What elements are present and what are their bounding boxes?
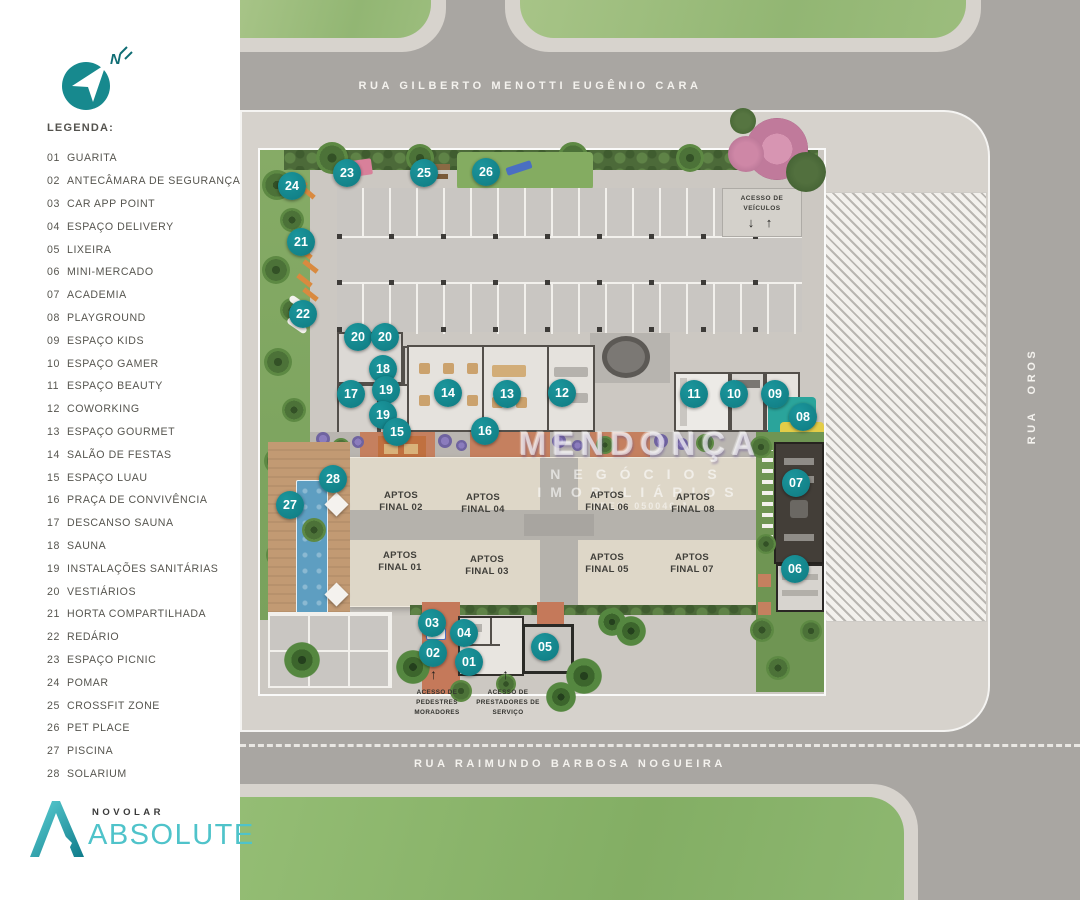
car-app-point-car xyxy=(426,628,446,640)
north-compass-icon: N xyxy=(48,42,138,122)
legend-item-07: 07ACADEMIA xyxy=(47,284,237,307)
apartment-building xyxy=(347,457,766,607)
street-name-right: RUA OROS xyxy=(1026,316,1038,476)
logo-a-mark xyxy=(28,795,86,861)
stepping-stone xyxy=(758,574,771,587)
room-academia xyxy=(774,442,824,564)
lixeira-building xyxy=(522,624,574,674)
legend-item-04: 04ESPAÇO DELIVERY xyxy=(47,215,237,238)
legend-item-17: 17DESCANSO SAUNA xyxy=(47,512,237,535)
legend-item-11: 11ESPAÇO BEAUTY xyxy=(47,375,237,398)
legend-item-15: 15ESPAÇO LUAU xyxy=(47,466,237,489)
legend-title: LEGENDA: xyxy=(47,122,114,134)
legend-item-01: 01GUARITA xyxy=(47,147,237,170)
legend-list: 01GUARITA02ANTECÂMARA DE SEGURANÇA03CAR … xyxy=(47,147,237,785)
room-mini-mercado xyxy=(776,564,824,612)
pet-bench xyxy=(476,174,492,179)
flowering-tree xyxy=(728,108,838,203)
legend-item-24: 24POMAR xyxy=(47,671,237,694)
legend-item-03: 03CAR APP POINT xyxy=(47,193,237,216)
sidewalk-corner-bottom xyxy=(240,784,918,900)
room-vestiarios xyxy=(337,332,403,384)
service-access-arrow: ↑ xyxy=(502,666,509,682)
legend-item-08: 08PLAYGROUND xyxy=(47,307,237,330)
legend-item-06: 06MINI-MERCADO xyxy=(47,261,237,284)
grass-top-left xyxy=(240,0,431,38)
room-espaco-gamer xyxy=(730,372,765,432)
stepping-stone xyxy=(758,602,771,615)
legend-item-21: 21HORTA COMPARTILHADA xyxy=(47,603,237,626)
logo-name: ABSOLUTE xyxy=(88,819,255,852)
crossfit-bench xyxy=(426,174,448,179)
developer-logo: NOVOLAR ABSOLUTE xyxy=(28,795,228,885)
service-access-label: ACESSO DE PRESTADORES DE SERVIÇO xyxy=(468,688,548,717)
street-name-bottom: RUA RAIMUNDO BARBOSA NOGUEIRA xyxy=(320,758,820,770)
vehicle-access-arrows: ↓ ↑ xyxy=(723,215,801,230)
legend-sidebar: N LEGENDA: 01GUARITA02ANTECÂMARA DE SEGU… xyxy=(0,0,240,900)
building-core xyxy=(524,514,594,536)
pedestrian-access-label: ACESSO DE PEDESTRES MORADORES xyxy=(400,688,474,717)
legend-item-13: 13ESPAÇO GOURMET xyxy=(47,421,237,444)
road-center-dashed-line xyxy=(240,744,1080,747)
pedestrian-access-path xyxy=(422,602,460,694)
legend-item-27: 27PISCINA xyxy=(47,740,237,763)
legend-item-18: 18SAUNA xyxy=(47,535,237,558)
legend-item-14: 14SALÃO DE FESTAS xyxy=(47,443,237,466)
pool-planter xyxy=(302,518,326,542)
picnic-blanket xyxy=(345,158,373,177)
legend-item-12: 12COWORKING xyxy=(47,398,237,421)
sidewalk-corner-top-right xyxy=(505,0,981,52)
building-base-hedge xyxy=(410,605,762,615)
legend-item-19: 19INSTALAÇÕES SANITÁRIAS xyxy=(47,557,237,580)
legend-item-02: 02ANTECÂMARA DE SEGURANÇA xyxy=(47,170,237,193)
site-plan-map: RUA GILBERTO MENOTTI EUGÊNIO CARA RUA RA… xyxy=(240,0,1080,900)
grass-top-right xyxy=(520,0,966,38)
sidewalk-corner-top-left xyxy=(240,0,446,52)
legend-item-28: 28SOLARIUM xyxy=(47,763,237,786)
legend-item-05: 05LIXEIRA xyxy=(47,238,237,261)
legend-item-25: 25CROSSFIT ZONE xyxy=(47,694,237,717)
neighbor-lot-hatched xyxy=(823,192,987,622)
pet-place-area xyxy=(457,152,593,190)
pedestrian-access-arrow: ↑ xyxy=(430,666,437,682)
legend-item-23: 23ESPAÇO PICNIC xyxy=(47,649,237,672)
legend-item-20: 20VESTIÁRIOS xyxy=(47,580,237,603)
room-espaco-beauty xyxy=(674,372,730,432)
round-water-tank xyxy=(602,336,650,378)
grass-bottom xyxy=(240,797,904,900)
guarita-complex xyxy=(458,616,524,676)
legend-item-26: 26PET PLACE xyxy=(47,717,237,740)
logo-brand: NOVOLAR xyxy=(92,807,255,818)
legend-item-16: 16PRAÇA DE CONVIVÊNCIA xyxy=(47,489,237,512)
room-salao-gourmet-coworking xyxy=(407,345,595,432)
legend-item-09: 09ESPAÇO KIDS xyxy=(47,329,237,352)
site-plan-poster: RUA GILBERTO MENOTTI EUGÊNIO CARA RUA RA… xyxy=(0,0,1080,900)
street-name-top: RUA GILBERTO MENOTTI EUGÊNIO CARA xyxy=(270,80,790,92)
legend-item-10: 10ESPAÇO GAMER xyxy=(47,352,237,375)
crossfit-equipment xyxy=(420,164,450,170)
legend-item-22: 22REDÁRIO xyxy=(47,626,237,649)
